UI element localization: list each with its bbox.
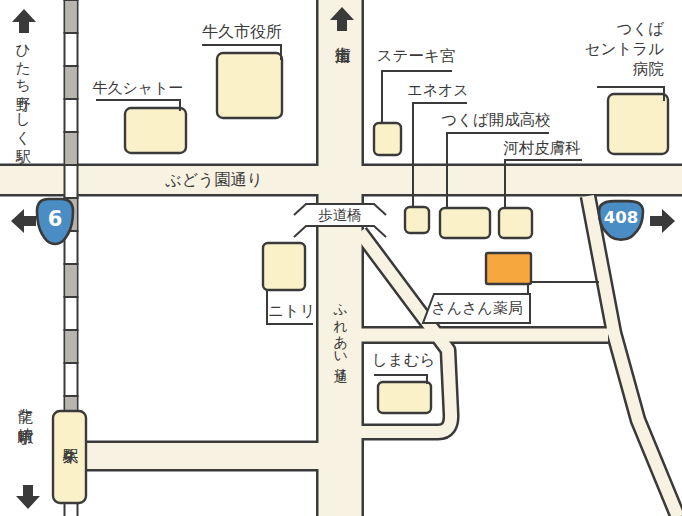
place-label-chateau: 牛久シャトー bbox=[78, 80, 198, 97]
street-label-budouen: ぶどう園通り bbox=[148, 171, 280, 189]
building-nitori bbox=[263, 243, 305, 290]
bridge-label-hodokyo: 歩道橋 bbox=[305, 207, 375, 224]
place-label-shimamura: しまむら bbox=[372, 352, 430, 370]
place-label-sansan-pharmacy: さんさん薬局 bbox=[430, 300, 524, 317]
place-label-eneos: エネオス bbox=[398, 82, 478, 99]
place-label-kawamura-derm: 河村皮膚科 bbox=[501, 140, 583, 158]
place-label-nitori: ニトリ bbox=[268, 303, 314, 321]
station-label-ryugasaki-shi: 龍ケ崎市駅 bbox=[16, 396, 34, 419]
building-steak-miya bbox=[374, 123, 401, 155]
access-map: ひたち野うしく駅 龍ケ崎市駅 土浦市街 ふれあい通り 牛久駅 ぶどう園通り 歩道… bbox=[0, 0, 682, 516]
building-central-hospital bbox=[608, 94, 668, 154]
route-408-number: 408 bbox=[598, 209, 644, 228]
place-label-central-hospital: つくば セントラル 病院 bbox=[556, 19, 664, 79]
station-ushiku-box bbox=[53, 411, 86, 503]
route-6-number: 6 bbox=[37, 207, 73, 231]
up-arrow-icon bbox=[12, 9, 36, 33]
building-kaisei-hs bbox=[440, 208, 490, 238]
down-arrow-icon bbox=[16, 485, 40, 509]
place-label-steak-miya: ステーキ宮 bbox=[376, 48, 456, 66]
building-city-hall bbox=[217, 53, 282, 118]
building-eneos bbox=[405, 207, 429, 233]
left-arrow-icon bbox=[11, 209, 36, 233]
place-label-city-hall: 牛久市役所 bbox=[180, 23, 304, 41]
building-kawamura-derm bbox=[499, 208, 532, 238]
building-chateau bbox=[125, 108, 186, 153]
street-label-fureai: ふれあい通り bbox=[333, 294, 349, 374]
building-sansan-pharmacy-highlight bbox=[486, 253, 531, 284]
place-label-kaisei-hs: つくば開成高校 bbox=[440, 112, 552, 130]
right-arrow-icon bbox=[650, 209, 675, 233]
station-label-hitachino-ushiku: ひたち野うしく駅 bbox=[14, 34, 31, 137]
building-shimamura bbox=[378, 382, 431, 413]
